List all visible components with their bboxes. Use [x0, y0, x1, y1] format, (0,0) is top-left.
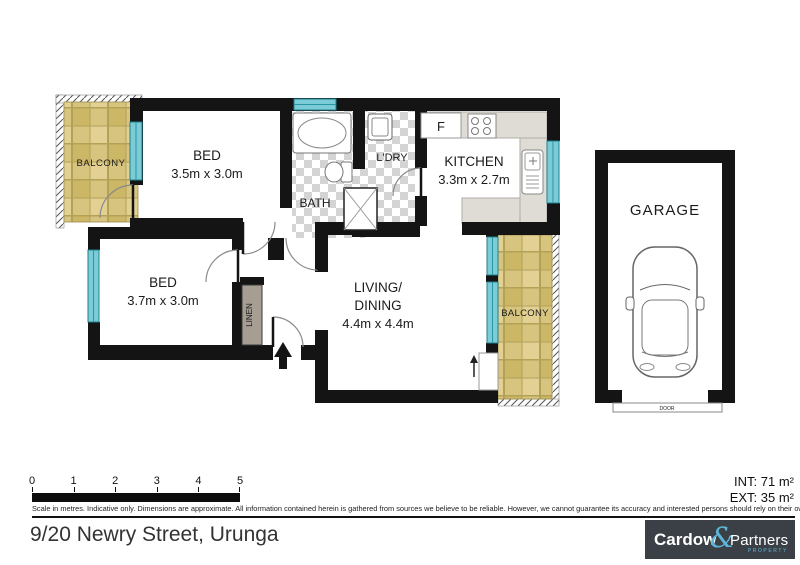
balcony-left-label: BALCONY — [77, 158, 126, 169]
entry-arrow-icon — [274, 342, 292, 369]
living-label-line2: DINING — [354, 298, 401, 313]
floorplan-page: BALCONY BED 3.5m x 3.0m BATH L'DRY F KIT… — [0, 0, 800, 565]
bed1-dims: 3.5m x 3.0m — [171, 166, 243, 181]
bath-label: BATH — [299, 196, 330, 210]
shower-icon — [344, 188, 377, 230]
cooktop-icon — [468, 114, 496, 138]
balcony-right-label: BALCONY — [501, 308, 549, 319]
fridge-label: F — [437, 119, 445, 134]
disclaimer-text: Scale in metres. Indicative only. Dimens… — [32, 504, 795, 518]
area-figures: INT: 71 m² EXT: 35 m² — [730, 474, 794, 506]
scale-label: 5 — [237, 475, 243, 487]
agency-logo: Cardow & Partners PROPERTY — [645, 520, 795, 559]
scale-bar-fill — [32, 493, 240, 502]
logo-name-part1: Cardow — [654, 530, 716, 550]
logo-name-part2: Partners — [730, 532, 788, 549]
garage-door-label: DOOR — [660, 406, 675, 412]
scale-bar: 0 1 2 3 4 5 — [32, 475, 240, 501]
laundry-tub-icon — [368, 114, 392, 140]
sliding-door — [470, 353, 498, 390]
kitchen-dims: 3.3m x 2.7m — [438, 172, 510, 187]
living-dims: 4.4m x 4.4m — [342, 316, 414, 331]
bed2-dims: 3.7m x 3.0m — [127, 293, 199, 308]
scale-label: 2 — [112, 475, 118, 487]
scale-label: 3 — [154, 475, 160, 487]
floorplan-drawing: BALCONY BED 3.5m x 3.0m BATH L'DRY F KIT… — [0, 0, 800, 470]
property-address: 9/20 Newry Street, Urunga — [30, 523, 279, 547]
linen-label: LINEN — [245, 303, 254, 327]
bed1-label: BED — [193, 148, 221, 163]
balcony-right-floor — [498, 233, 559, 406]
scale-label: 0 — [29, 475, 35, 487]
logo-tagline: PROPERTY — [748, 548, 788, 554]
scale-label: 1 — [71, 475, 77, 487]
car-icon — [626, 247, 704, 377]
scale-bar-ticks — [32, 487, 240, 492]
toilet-icon — [325, 162, 352, 182]
living-label-line1: LIVING/ — [354, 280, 402, 295]
kitchen-sink-icon — [522, 150, 543, 194]
garage-label: GARAGE — [630, 202, 700, 219]
internal-area: INT: 71 m² — [730, 474, 794, 490]
bed2-label: BED — [149, 275, 177, 290]
bathtub-icon — [293, 113, 351, 153]
kitchen-label: KITCHEN — [444, 154, 503, 169]
laundry-label: L'DRY — [376, 152, 408, 164]
scale-label: 4 — [195, 475, 201, 487]
scale-bar-labels: 0 1 2 3 4 5 — [32, 475, 240, 487]
